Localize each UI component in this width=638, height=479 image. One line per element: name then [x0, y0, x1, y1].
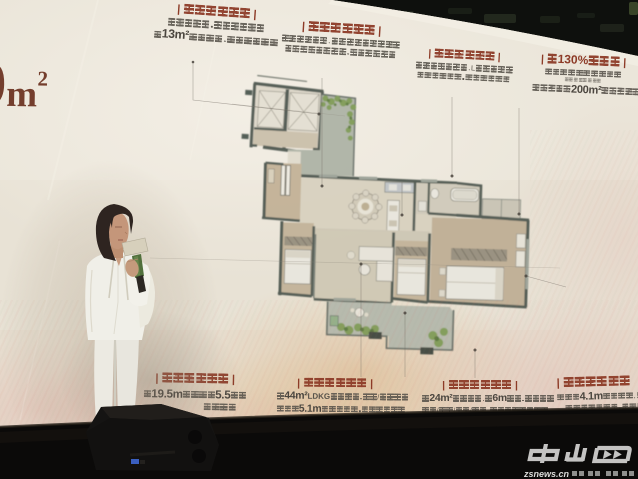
- svg-text:zsnews.cn: zsnews.cn: [523, 469, 570, 479]
